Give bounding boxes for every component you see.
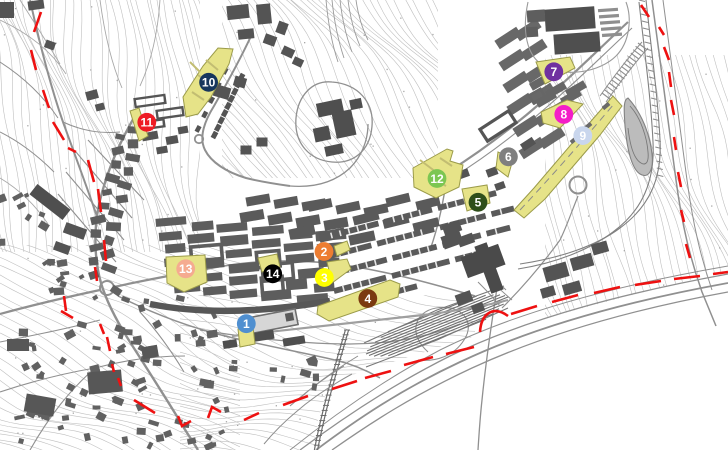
svg-text:2: 2 [321,245,328,259]
svg-text:3: 3 [321,271,328,285]
svg-text:4: 4 [364,292,371,306]
svg-text:1: 1 [243,317,250,331]
svg-text:9: 9 [579,129,586,143]
svg-text:10: 10 [202,76,216,90]
svg-text:11: 11 [140,116,153,130]
svg-text:7: 7 [550,65,557,79]
svg-text:14: 14 [266,267,280,281]
svg-text:8: 8 [560,108,567,122]
svg-text:13: 13 [179,262,193,276]
svg-text:12: 12 [430,172,444,186]
svg-text:6: 6 [505,150,512,164]
svg-text:5: 5 [475,196,482,210]
